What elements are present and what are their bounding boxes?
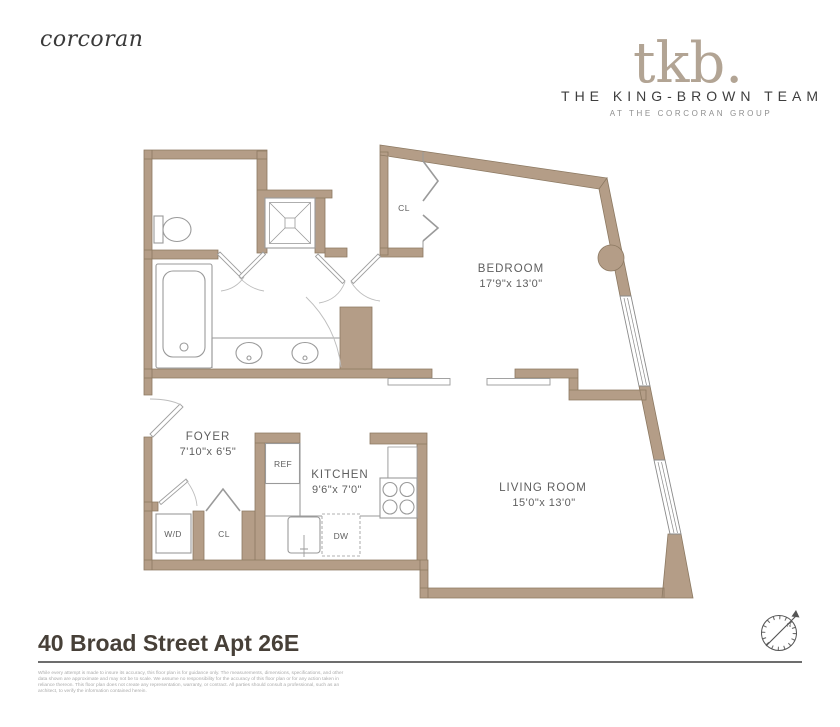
disclaimer-line: architect, to verify the information con…: [38, 688, 147, 694]
wd-door-leaf: [159, 479, 188, 505]
address-title: 40 Broad Street Apt 26E: [38, 630, 299, 656]
team-name: THE KING-BROWN TEAM: [561, 88, 823, 104]
floor-plan-canvas: corcoran tkb. THE KING-BROWN TEAM AT THE…: [0, 0, 840, 727]
kitchen-label: KITCHEN: [311, 469, 368, 481]
disclaimer-line: data shown are approximate and may not b…: [38, 676, 339, 682]
kitchen-dims: 9'6"x 7'0": [312, 484, 362, 496]
bedroom-closet-bifold: [423, 161, 438, 241]
dishwasher-label: DW: [334, 531, 349, 541]
disclaimer-line: While every attempt is made to insure it…: [38, 670, 344, 676]
corcoran-logo: corcoran: [40, 27, 143, 52]
disclaimer-text: While every attempt is made to insure it…: [38, 670, 344, 694]
foyer-closet-label: CL: [218, 529, 230, 539]
shower-fixture: [265, 198, 315, 248]
bedroom-closet-label: CL: [398, 203, 410, 213]
shower-hall-door-leaf: [316, 254, 346, 284]
kitchen-sink-fixture: [288, 517, 320, 557]
bedroom-hall-door-leaf: [351, 254, 381, 284]
foyer-dims: 7'10"x 6'5": [180, 446, 237, 458]
living-room-label: LIVING ROOM: [499, 482, 587, 494]
refrigerator-label: REF: [274, 459, 292, 469]
window-living-room: [654, 460, 681, 534]
tkb-logo-block: tkb. THE KING-BROWN TEAM AT THE CORCORAN…: [561, 31, 823, 118]
floorplan-page: corcoran tkb. THE KING-BROWN TEAM AT THE…: [0, 0, 840, 727]
sliding-door-panels: [388, 379, 550, 386]
disclaimer-line: reliance thereon. This floor plan does n…: [38, 682, 339, 688]
entry-door-leaf: [150, 404, 183, 437]
vanity-sinks: [212, 338, 340, 368]
bathroom-door-leaf: [239, 252, 266, 279]
stove-fixture: [380, 478, 417, 518]
foyer-closet-bifold: [206, 489, 240, 511]
compass-north-label: N: [787, 623, 791, 629]
tkb-logo: tkb.: [633, 31, 743, 96]
bedroom-label: BEDROOM: [478, 263, 544, 275]
compass-icon: N: [762, 610, 800, 651]
foyer-label: FOYER: [186, 431, 231, 443]
bathtub-fixture: [156, 264, 212, 368]
window-bedroom: [620, 296, 650, 386]
living-room-dims: 15'0"x 13'0": [512, 497, 575, 509]
washer-dryer-label: W/D: [164, 529, 181, 539]
column-bump: [598, 245, 624, 271]
north-arrow: [766, 616, 796, 646]
toilet-fixture: [154, 216, 191, 243]
bedroom-dims: 17'9"x 13'0": [479, 278, 542, 290]
kitchen-cabinet-box: [388, 447, 417, 478]
team-subtitle: AT THE CORCORAN GROUP: [610, 109, 773, 118]
